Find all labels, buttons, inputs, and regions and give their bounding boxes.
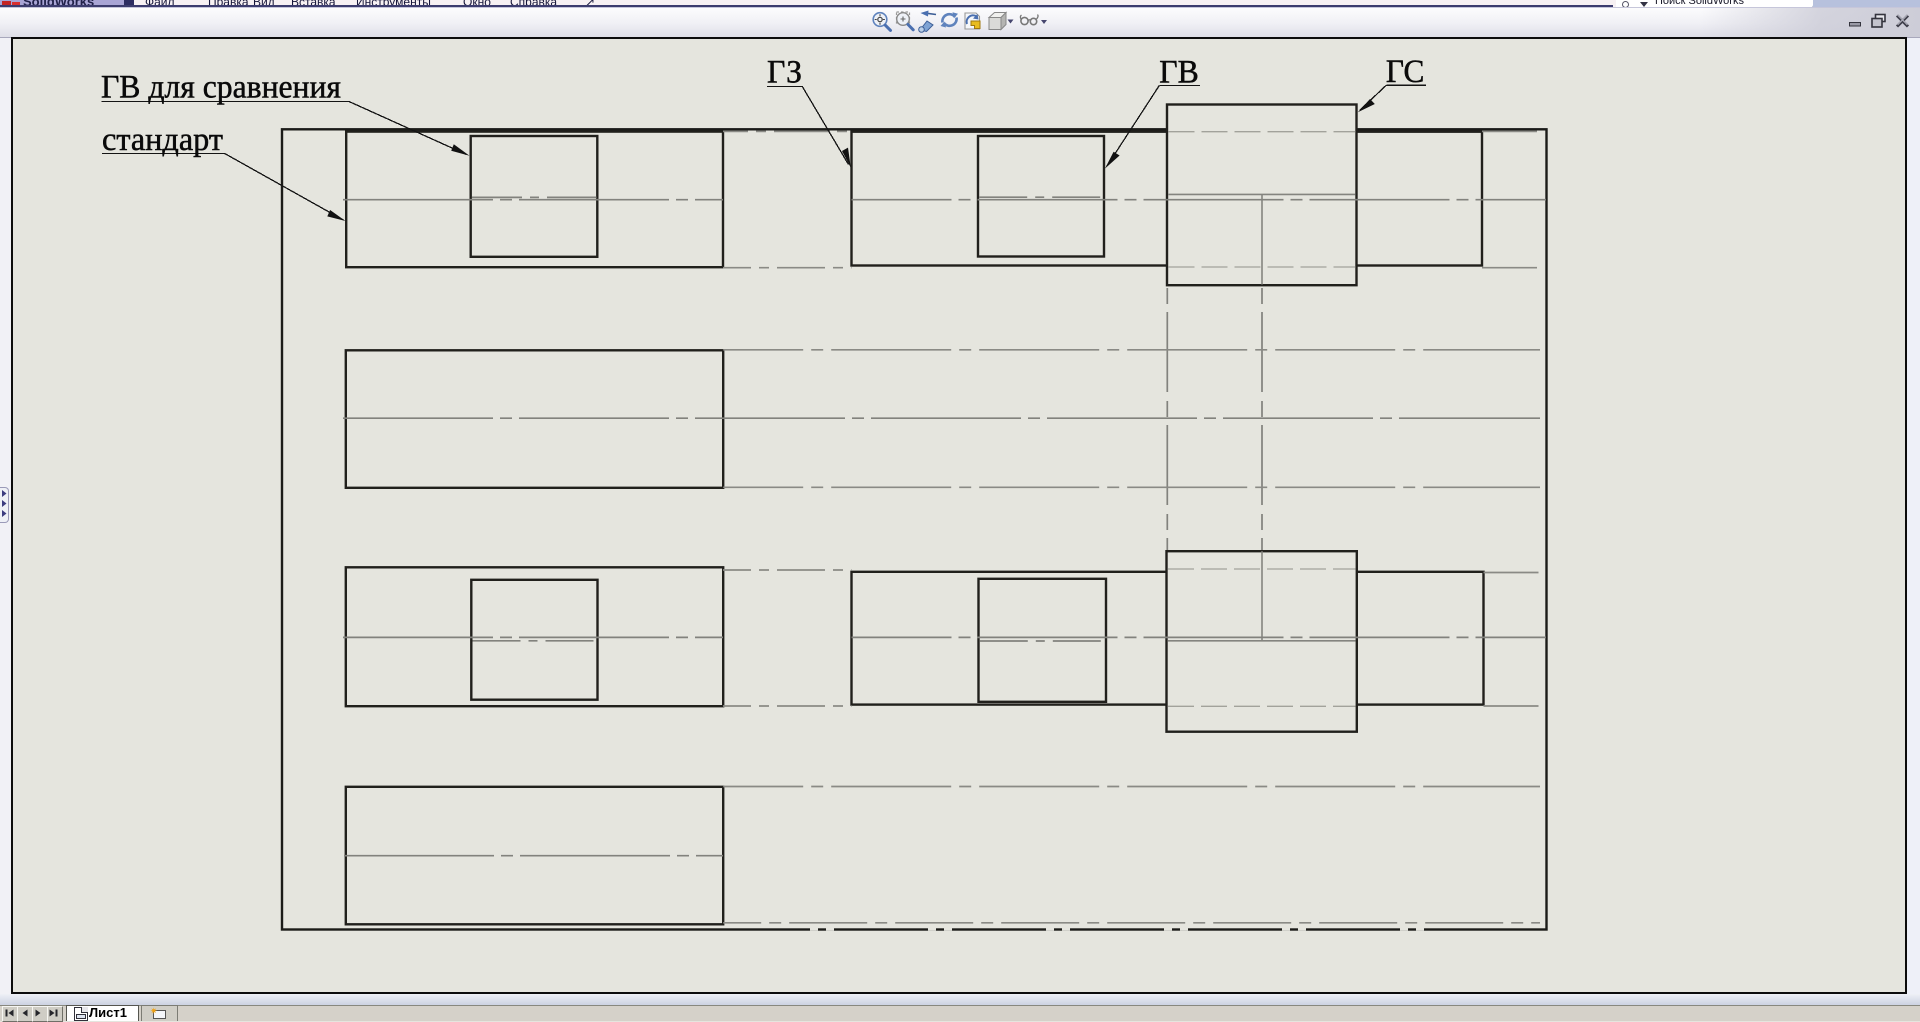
svg-text:стандарт: стандарт xyxy=(102,122,223,158)
svg-text:ГЗ: ГЗ xyxy=(767,55,802,91)
svg-text:ГВ для сравнения: ГВ для сравнения xyxy=(101,70,341,106)
svg-text:ГВ: ГВ xyxy=(1159,54,1199,90)
svg-text:ГС: ГС xyxy=(1386,54,1425,90)
